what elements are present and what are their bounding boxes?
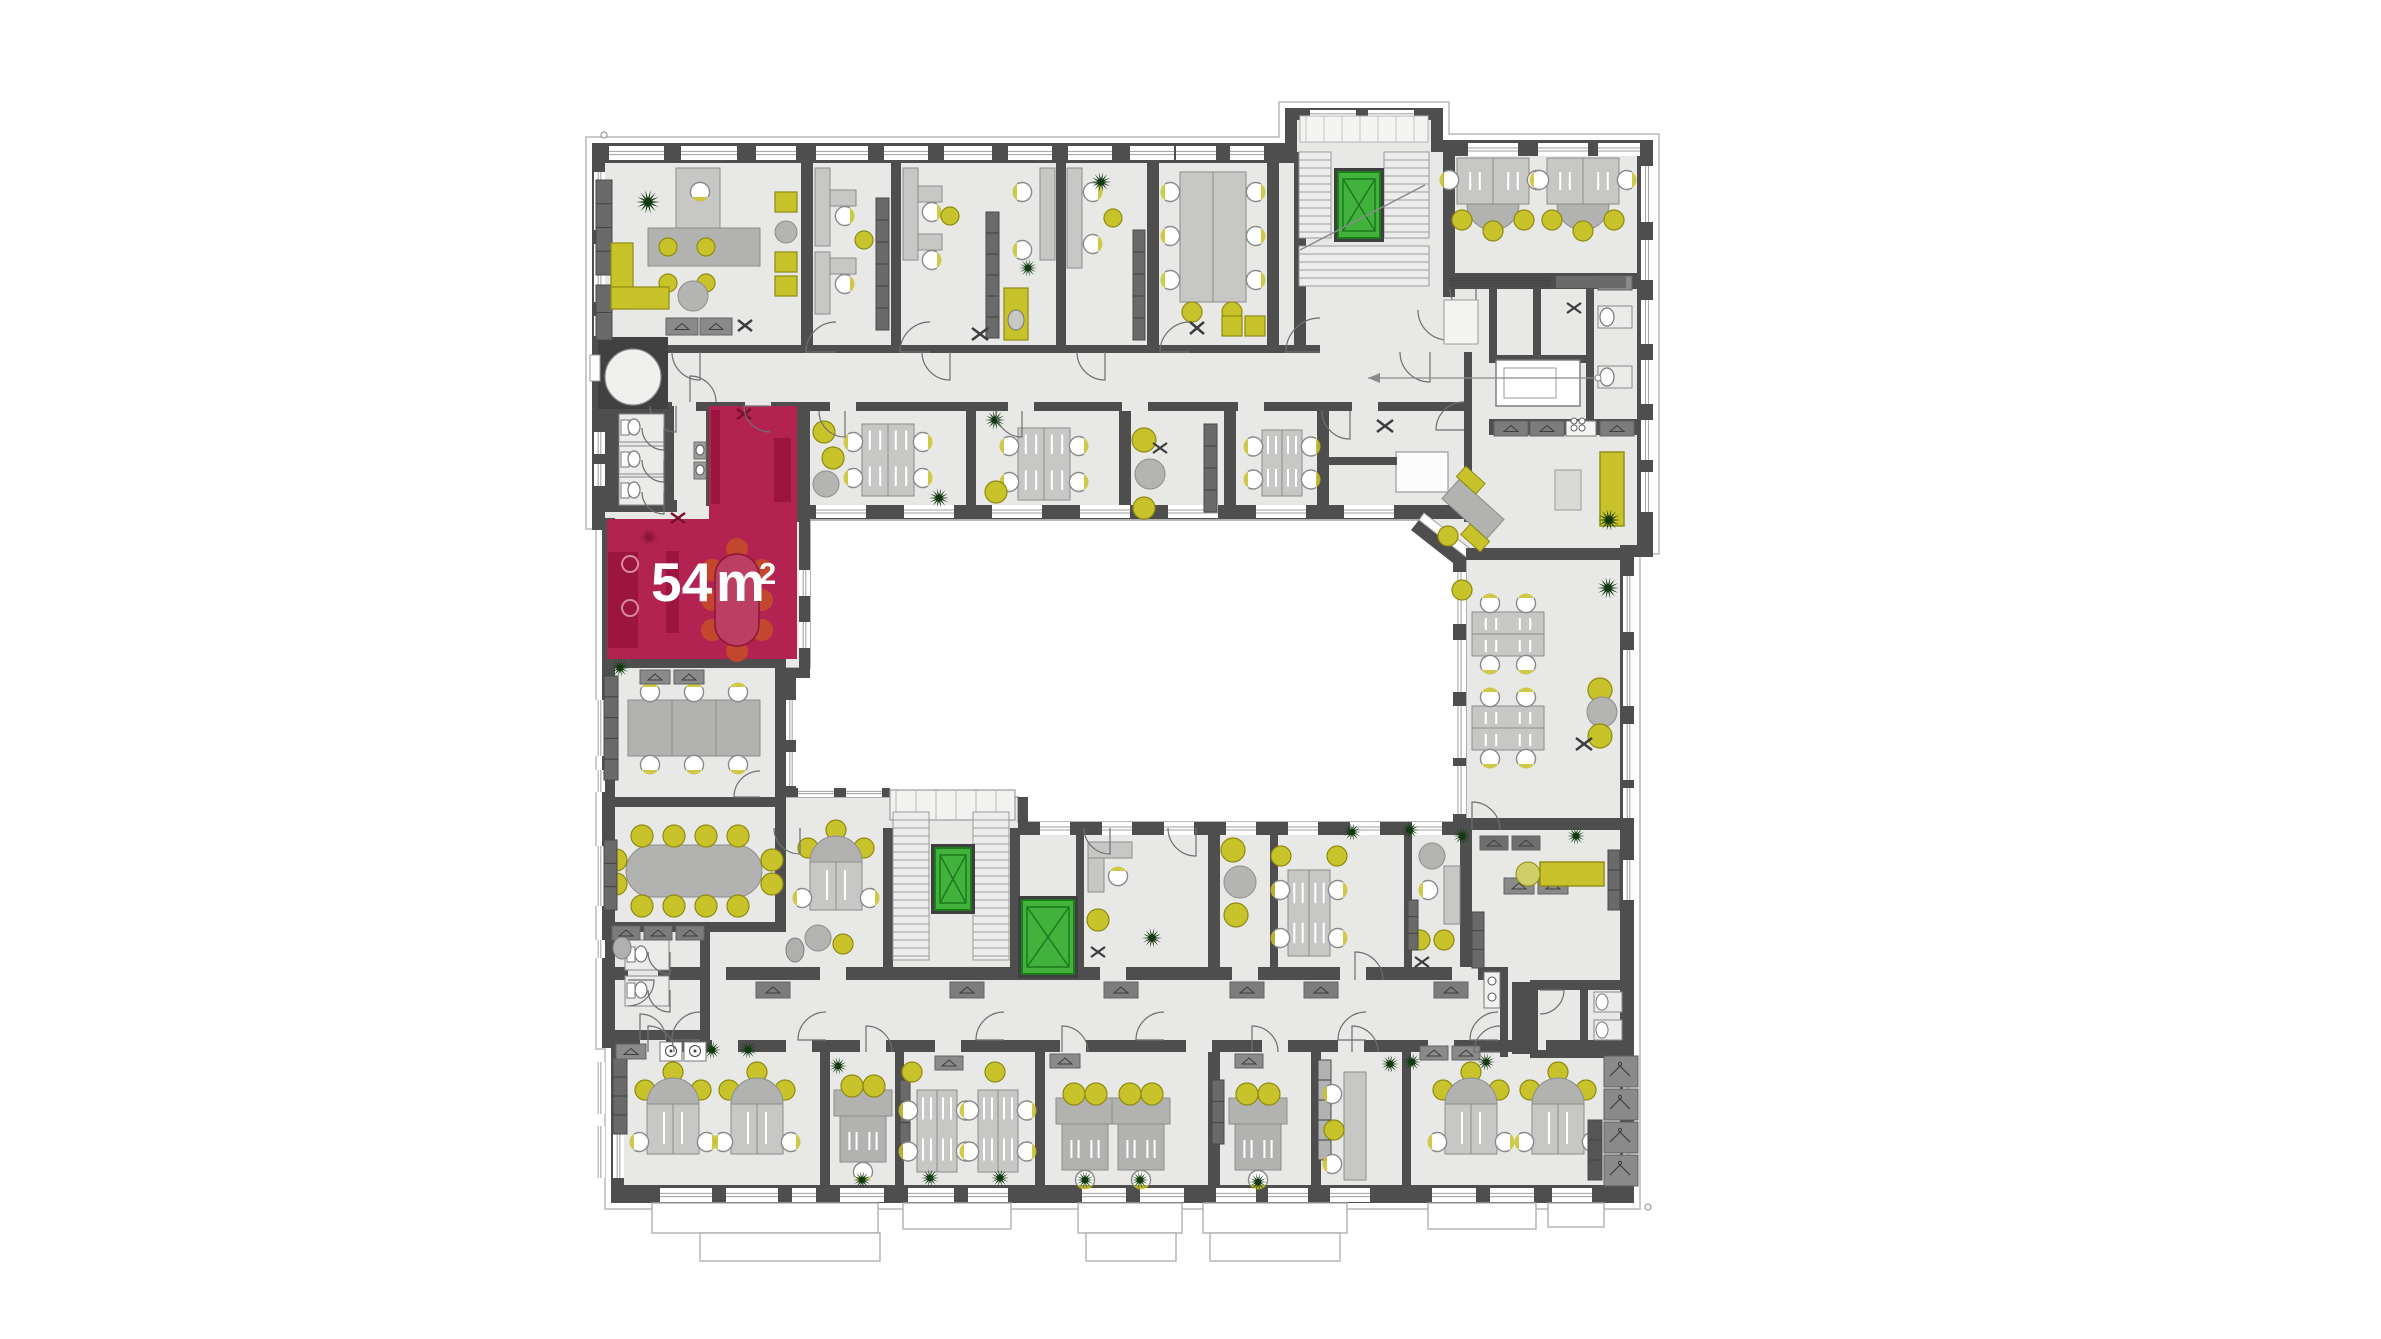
svg-text:m: m	[716, 551, 765, 613]
svg-text:2: 2	[759, 556, 776, 591]
svg-text:54: 54	[651, 551, 713, 613]
